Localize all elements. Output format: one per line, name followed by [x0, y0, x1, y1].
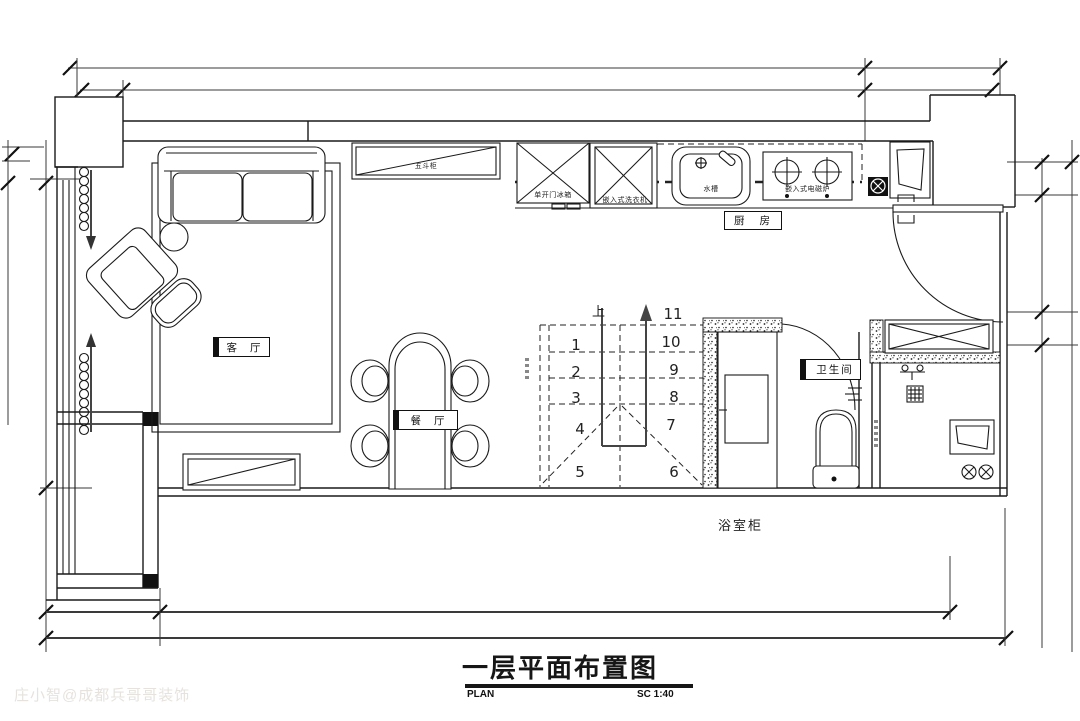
dining-room-label-text: 餐 厅: [411, 413, 450, 428]
toilet: [813, 410, 859, 488]
round-side-table: [160, 223, 188, 251]
watermark-text: 庄小智@成都兵哥哥装饰: [14, 684, 190, 705]
stair-step-11: 11: [660, 305, 686, 323]
fridge-label: 单开门冰箱: [517, 190, 589, 200]
sofa: [158, 147, 325, 223]
mirror-cabinet: [885, 320, 993, 353]
curtain-symbol-bottom: [80, 333, 97, 435]
curtain-symbol-top: [80, 168, 97, 251]
stair-step-6: 6: [664, 463, 684, 481]
bathroom-label: 卫生间: [800, 359, 861, 380]
floor-plan-page: .w{stroke:#1a1a1a;stroke-width:1.4;fill:…: [0, 0, 1080, 721]
door-swing-arc: [893, 212, 1003, 322]
stair-step-4: 4: [570, 420, 590, 438]
living-room-label-text: 客 厅: [227, 340, 266, 355]
living-room: [80, 147, 341, 490]
bathroom-label-text: 卫生间: [816, 362, 854, 377]
tiny-annotation-marks: [525, 358, 529, 379]
title-underline: [465, 684, 693, 688]
living-room-label: 客 厅: [213, 337, 270, 357]
shower-room: [870, 320, 1000, 488]
stair-step-10: 10: [658, 333, 684, 351]
bath-vanity: [950, 420, 994, 479]
bathroom: [703, 318, 862, 488]
bath-cabinet-label: 浴室柜: [718, 515, 763, 534]
shower-valve: [900, 365, 925, 380]
stair-step-8: 8: [664, 388, 684, 406]
stair-step-7: 7: [661, 416, 681, 434]
stair-step-9: 9: [664, 361, 684, 379]
tv-cabinet: [183, 454, 300, 490]
scale-label: SC 1:40: [637, 689, 674, 700]
tiny-annotation-marks: [874, 420, 878, 447]
sink-label: 水槽: [676, 184, 746, 194]
kitchen-sink: [672, 147, 750, 205]
stair-step-2: 2: [566, 363, 586, 381]
dining-room-label: 餐 厅: [393, 410, 458, 430]
kitchen-label-text: 厨 房: [734, 213, 776, 228]
entry-door: [893, 195, 1003, 322]
floor-drain-grid: [907, 386, 923, 402]
kitchen-label: 厨 房: [724, 211, 782, 230]
cooktop-label: 嵌入式电磁炉: [763, 184, 852, 194]
stair-step-3: 3: [566, 389, 586, 407]
stairs-up-label: 上: [592, 301, 605, 320]
floor-drain-dark: [868, 177, 888, 196]
stair-step-1: 1: [566, 336, 586, 354]
entry-washbasin: [890, 142, 930, 198]
dresser-label: 五斗柜: [352, 161, 500, 171]
stair-step-5: 5: [570, 463, 590, 481]
washer-label: 嵌入式洗衣机: [592, 195, 658, 205]
plan-label: PLAN: [467, 689, 494, 700]
floor-plan-drawing: .w{stroke:#1a1a1a;stroke-width:1.4;fill:…: [0, 0, 1080, 721]
drawing-title: 一层平面布置图: [430, 648, 690, 685]
